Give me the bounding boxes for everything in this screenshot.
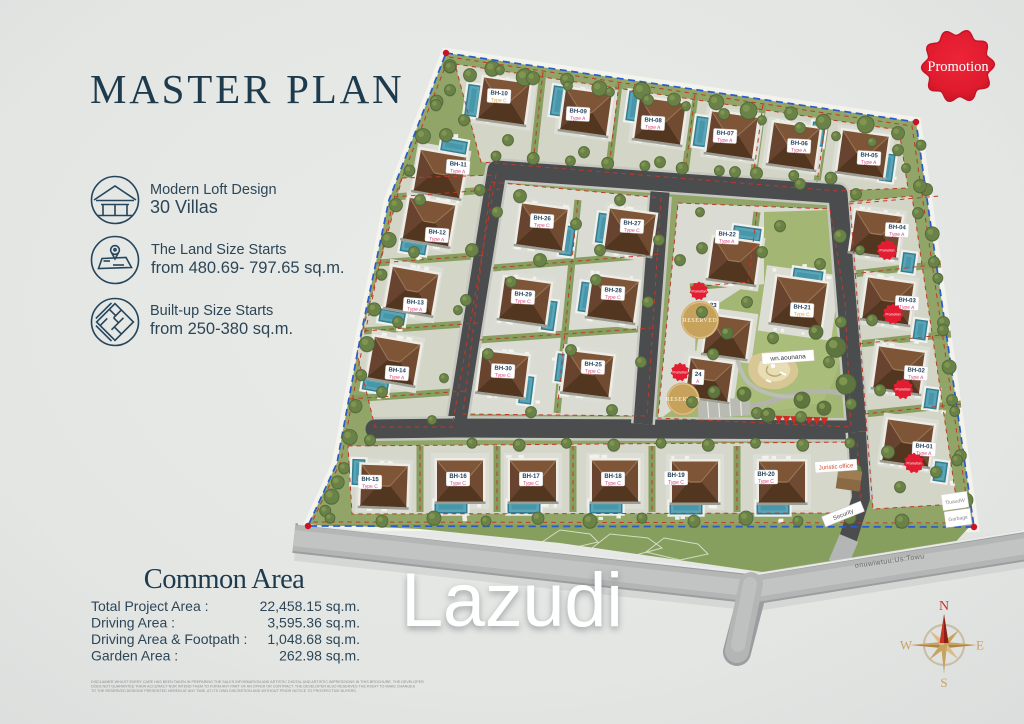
svg-text:Type C: Type C [515, 298, 532, 305]
svg-text:Type C: Type C [362, 484, 378, 490]
svg-text:Type A: Type A [407, 306, 423, 313]
svg-text:BH-26: BH-26 [533, 216, 551, 223]
svg-text:Promotion: Promotion [906, 461, 921, 465]
svg-text:BH-16: BH-16 [449, 474, 467, 480]
svg-text:24: 24 [695, 372, 703, 378]
svg-text:Built-up Size Starts: Built-up Size Starts [150, 303, 273, 319]
svg-text:Type C: Type C [758, 479, 774, 485]
svg-text:S: S [940, 675, 947, 690]
svg-text:BH-08: BH-08 [644, 118, 662, 125]
svg-text:Type A: Type A [450, 168, 466, 175]
svg-text:30 Villas: 30 Villas [150, 197, 218, 217]
svg-text:Garden Area :: Garden Area : [91, 648, 178, 664]
svg-text:Promotion: Promotion [927, 59, 989, 75]
svg-text:Promotion: Promotion [691, 289, 706, 293]
svg-text:Type A: Type A [645, 124, 661, 131]
svg-text:Promotion: Promotion [895, 387, 910, 391]
svg-text:BH-17: BH-17 [522, 474, 540, 480]
svg-text:BH-02: BH-02 [907, 368, 925, 375]
svg-text:Type A: Type A [908, 374, 924, 381]
svg-text:Type A: Type A [389, 374, 405, 381]
svg-text:BH-03: BH-03 [898, 298, 916, 305]
svg-text:BH-21: BH-21 [793, 305, 811, 312]
svg-text:from 250-380 sq.m.: from 250-380 sq.m. [150, 320, 293, 338]
svg-text:Type A: Type A [889, 231, 905, 238]
svg-text:BH-05: BH-05 [860, 153, 878, 160]
svg-text:BH-19: BH-19 [667, 473, 685, 479]
svg-text:Type C: Type C [495, 372, 512, 379]
svg-text:E: E [976, 638, 984, 653]
svg-text:MASTER PLAN: MASTER PLAN [90, 66, 404, 112]
svg-text:Driving Area :: Driving Area : [91, 615, 175, 631]
svg-text:N: N [939, 599, 949, 614]
svg-text:Type C: Type C [523, 481, 539, 487]
svg-text:Promotion: Promotion [672, 370, 687, 374]
svg-text:Common Area: Common Area [144, 564, 305, 595]
svg-text:Type A: Type A [791, 147, 807, 154]
svg-text:Type C: Type C [534, 222, 551, 229]
svg-text:The Land Size Starts: The Land Size Starts [151, 242, 286, 258]
svg-text:BH-18: BH-18 [604, 474, 622, 480]
svg-text:3,595.36 sq.m.: 3,595.36 sq.m. [267, 615, 360, 631]
svg-text:Type A: Type A [429, 236, 445, 243]
svg-text:Promotion: Promotion [885, 312, 900, 316]
svg-text:Type A: Type A [570, 115, 586, 122]
svg-text:Type C: Type C [794, 311, 811, 318]
svg-text:22,458.15 sq.m.: 22,458.15 sq.m. [260, 598, 360, 614]
svg-text:RESERVED: RESERVED [683, 318, 718, 324]
svg-text:BH-01: BH-01 [915, 444, 933, 451]
svg-text:Type C: Type C [585, 368, 602, 375]
svg-text:262.98 sq.m.: 262.98 sq.m. [279, 648, 360, 664]
svg-text:Type A: Type A [717, 137, 733, 144]
svg-text:Type C: Type C [668, 480, 684, 486]
svg-text:TO THE RESERVED DESIGNS PRESEN: TO THE RESERVED DESIGNS PRESENTED HEREIN… [91, 689, 357, 693]
svg-text:Lazudi: Lazudi [401, 558, 623, 643]
svg-text:BH-27: BH-27 [623, 221, 641, 228]
svg-text:Total Project Area :: Total Project Area : [91, 598, 209, 614]
svg-text:DISCLAIMER WHILST EVERY CARE: DISCLAIMER WHILST EVERY CARE HAS BEEN TA… [91, 680, 424, 684]
svg-text:BH-20: BH-20 [757, 472, 775, 478]
svg-text:BH-10: BH-10 [490, 91, 508, 98]
svg-text:BH-30: BH-30 [494, 366, 512, 373]
svg-text:from 480.69- 797.65 sq.m.: from 480.69- 797.65 sq.m. [151, 259, 345, 277]
svg-text:1,048.68 sq.m.: 1,048.68 sq.m. [267, 631, 360, 647]
svg-text:Type C: Type C [605, 294, 622, 301]
svg-text:BH-09: BH-09 [569, 109, 587, 116]
svg-text:Type A: Type A [719, 238, 735, 245]
svg-text:Driving Area & Footpath :: Driving Area & Footpath : [91, 631, 247, 647]
svg-text:BH-07: BH-07 [716, 131, 734, 138]
svg-text:Modern Loft Design: Modern Loft Design [150, 182, 277, 198]
svg-text:Type C: Type C [624, 227, 641, 234]
svg-text:W: W [900, 638, 913, 653]
svg-text:BH-06: BH-06 [790, 141, 808, 148]
svg-text:BH-28: BH-28 [604, 288, 622, 295]
svg-text:Type C: Type C [450, 481, 466, 487]
svg-text:DOES NOT GUARANTEE THEIR ACCUR: DOES NOT GUARANTEE THEIR ACCURACY NOR IN… [91, 685, 416, 689]
svg-text:Promotion: Promotion [879, 248, 894, 252]
svg-text:BH-04: BH-04 [888, 225, 906, 232]
svg-text:BH-25: BH-25 [584, 362, 602, 369]
svg-text:BH-29: BH-29 [514, 292, 532, 299]
svg-text:Type A: Type A [861, 159, 877, 166]
svg-text:BH-22: BH-22 [718, 232, 736, 239]
svg-text:BH-15: BH-15 [361, 477, 379, 483]
svg-text:Type C: Type C [491, 97, 508, 104]
svg-text:Type C: Type C [605, 481, 621, 487]
